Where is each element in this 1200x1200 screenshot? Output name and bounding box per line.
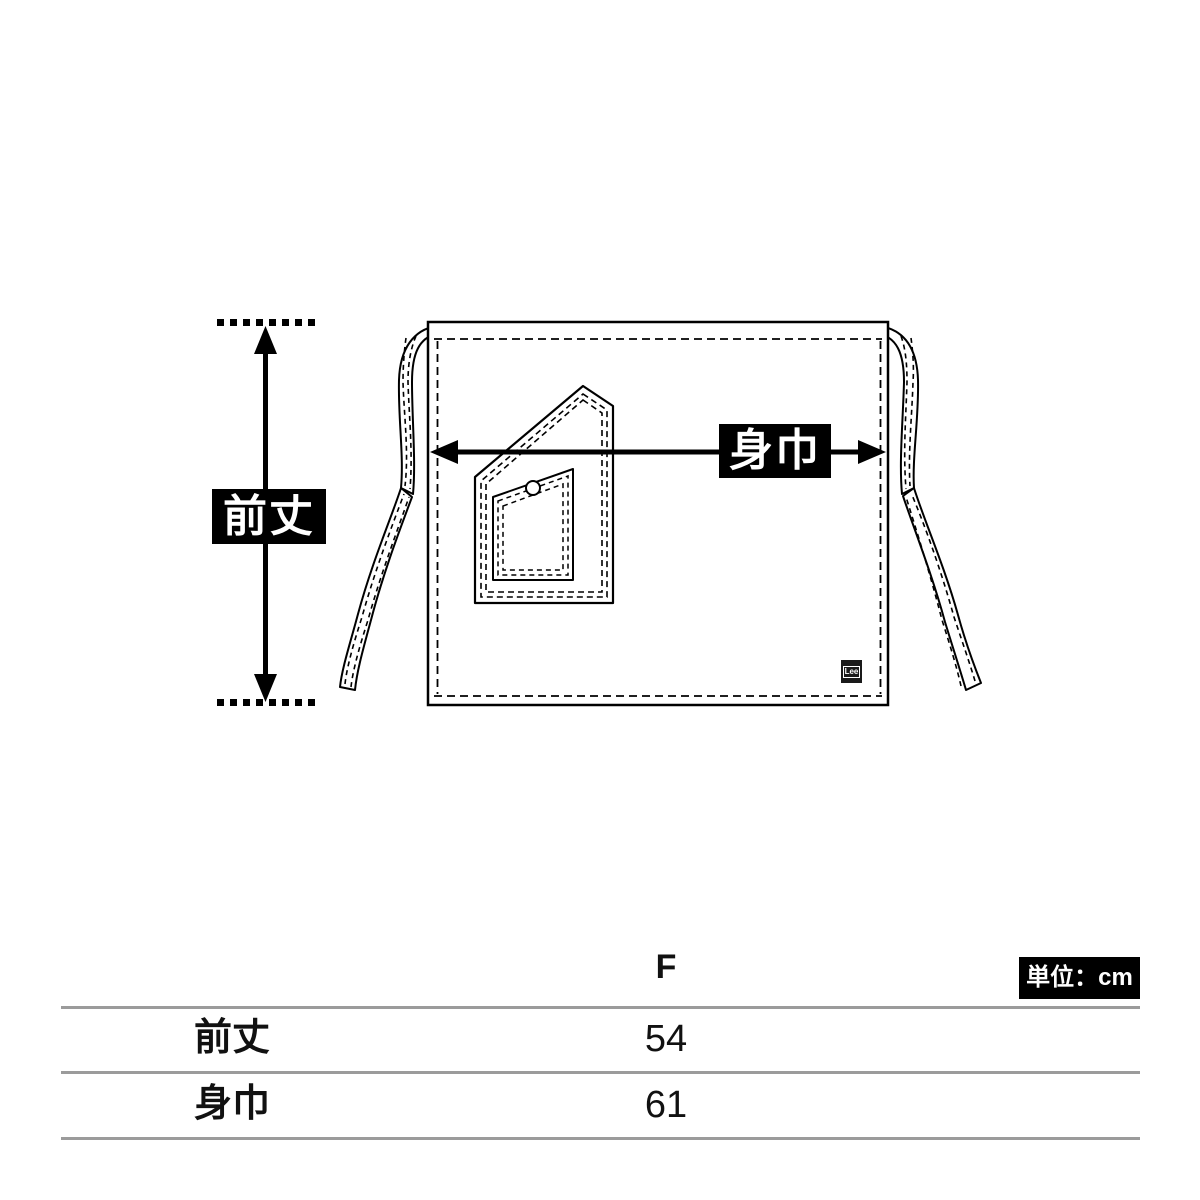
row-label-front-length: 前丈 [162, 1019, 302, 1057]
body-width-label: 身巾 [719, 424, 831, 478]
table-rule-bottom [61, 1137, 1140, 1140]
brand-patch-text: Lee [843, 666, 861, 678]
unit-badge: 単位：cm [1019, 957, 1140, 999]
size-column-header: F [600, 950, 732, 984]
table-rule-top [61, 1006, 1140, 1009]
front-length-label: 前丈 [212, 489, 326, 544]
row-label-body-width: 身巾 [162, 1085, 302, 1123]
row-value-body-width: 61 [600, 1086, 732, 1124]
brand-patch: Lee [841, 660, 862, 683]
right-tie [880, 326, 981, 690]
pocket-button [526, 481, 540, 495]
row-value-front-length: 54 [600, 1020, 732, 1058]
apron-size-chart: 前丈 身巾 Lee F 単位：cm 前丈 54 身巾 61 [0, 0, 1200, 1200]
table-rule-middle [61, 1071, 1140, 1074]
left-tie [340, 326, 436, 690]
